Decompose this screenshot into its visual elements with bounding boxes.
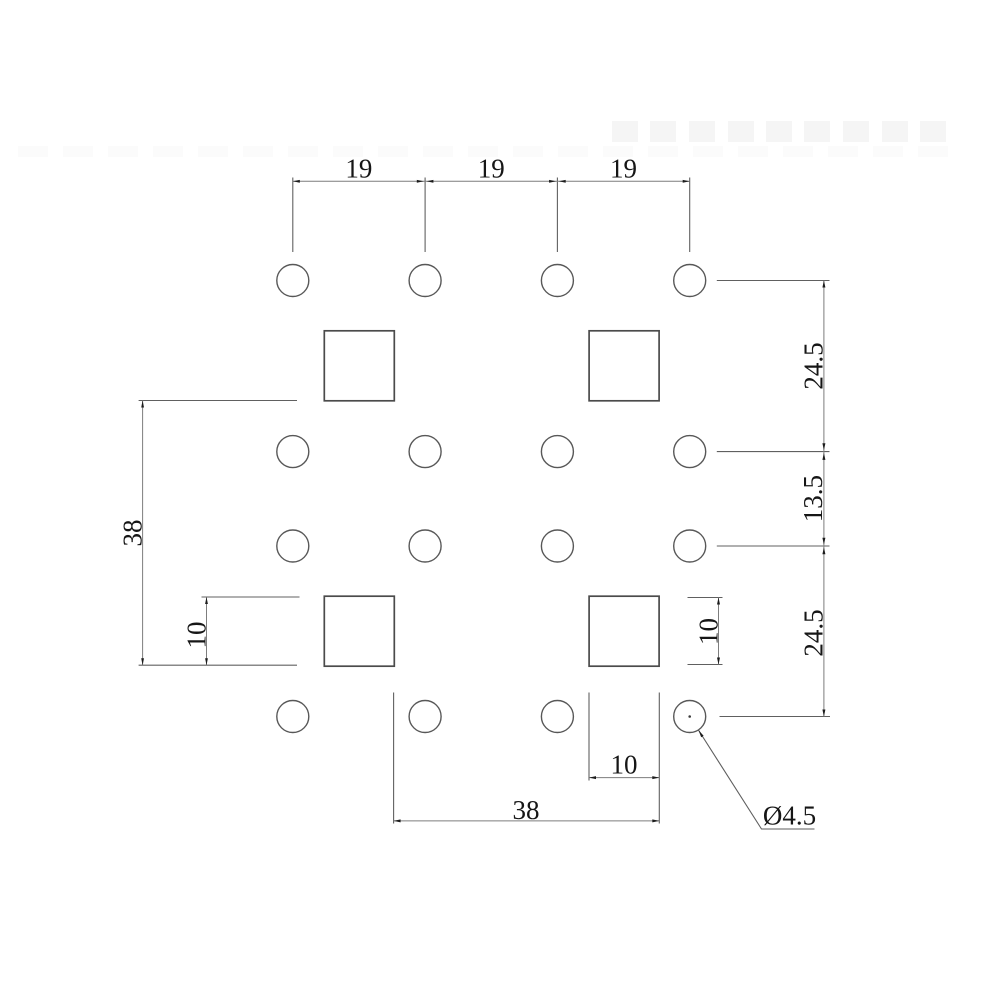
svg-text:10: 10 bbox=[182, 622, 212, 649]
svg-text:19: 19 bbox=[478, 154, 505, 184]
svg-text:24.5: 24.5 bbox=[799, 609, 829, 656]
svg-text:13.5: 13.5 bbox=[798, 475, 828, 522]
svg-text:10: 10 bbox=[611, 750, 638, 780]
svg-text:38: 38 bbox=[118, 520, 148, 547]
svg-text:Ø4.5: Ø4.5 bbox=[763, 801, 816, 831]
svg-text:24.5: 24.5 bbox=[799, 342, 829, 389]
svg-text:19: 19 bbox=[610, 154, 637, 184]
svg-text:10: 10 bbox=[694, 618, 724, 645]
svg-text:19: 19 bbox=[345, 154, 372, 184]
svg-text:38: 38 bbox=[513, 795, 540, 825]
